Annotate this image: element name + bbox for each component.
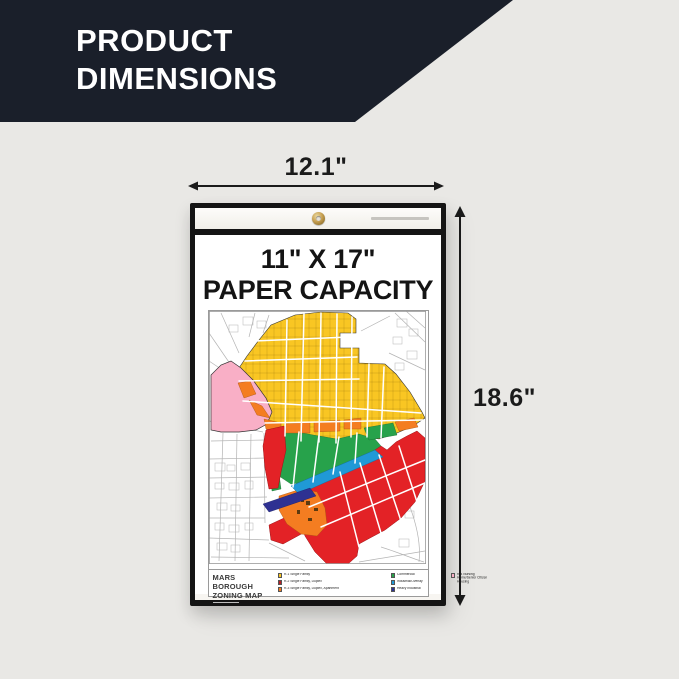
legend-label: R-2 Single Family, Duplex [284, 580, 322, 583]
width-arrow [188, 180, 444, 192]
legend-label: Industrial/Overlay [397, 580, 423, 583]
legend-item: Industrial/Overlay [391, 580, 444, 586]
paper-capacity-headline: 11" X 17" PAPER CAPACITY [195, 244, 441, 306]
banner-title-line2: DIMENSIONS [76, 60, 277, 98]
legend-item: Commercial [391, 573, 444, 579]
zoning-map: MARS BOROUGH ZONING MAP R-1 Single Famil… [208, 310, 429, 597]
legend-swatch [391, 587, 396, 592]
legend-label: Heavy Industrial [397, 587, 421, 590]
legend-column-commercial: Commercial Industrial/Overlay Heavy Indu… [391, 573, 444, 593]
zoning-map-graphic [209, 311, 426, 564]
legend-item: R-4 Nursing Home/Senior Citizen Housing [451, 573, 518, 592]
legend-column-residential: R-1 Single Family R-2 Single Family, Dup… [278, 573, 384, 593]
legend-item: R-2 Single Family, Duplex [278, 580, 384, 586]
legend-item: Heavy Industrial [391, 587, 444, 593]
legend-label: R-4 Nursing Home/Senior Citizen Housing [457, 573, 490, 583]
product-dimensions-infographic: PRODUCT DIMENSIONS 12.1" 18.6" 11" X 17"… [0, 0, 679, 679]
legend-label: Commercial [397, 573, 415, 576]
legend-swatch [278, 580, 283, 585]
legend-label: R-3 Single Family, Duplex, Apartment [284, 587, 339, 590]
legend-item: R-3 Single Family, Duplex, Apartment [278, 587, 384, 593]
map-title-line1: MARS BOROUGH [213, 573, 271, 591]
map-legend: MARS BOROUGH ZONING MAP R-1 Single Famil… [209, 569, 428, 596]
holder-hanging-strip [195, 208, 441, 229]
banner-title-line1: PRODUCT [76, 22, 277, 60]
map-title-line2: ZONING MAP [213, 591, 271, 600]
legend-item: R-1 Single Family [278, 573, 384, 579]
headline-line1: 11" X 17" [195, 244, 441, 275]
legend-swatch [278, 587, 283, 592]
banner-title: PRODUCT DIMENSIONS [76, 22, 277, 98]
legend-swatch [391, 580, 396, 585]
legend-swatch [391, 573, 396, 578]
watermark-text [371, 217, 429, 220]
grommet-eyelet-icon [312, 212, 325, 225]
width-dimension-label: 12.1" [216, 153, 416, 182]
inserted-paper: 11" X 17" PAPER CAPACITY [195, 235, 441, 594]
legend-swatch [278, 573, 283, 578]
height-arrow [453, 206, 467, 606]
legend-swatch [451, 573, 456, 578]
document-holder-product: 11" X 17" PAPER CAPACITY [190, 203, 446, 606]
height-dimension-label: 18.6" [473, 384, 536, 413]
headline-line2: PAPER CAPACITY [195, 275, 441, 306]
map-subtitle-text [213, 602, 239, 604]
map-title: MARS BOROUGH ZONING MAP [213, 573, 271, 603]
legend-label: R-1 Single Family [284, 573, 310, 576]
legend-column-r4: R-4 Nursing Home/Senior Citizen Housing [451, 573, 518, 592]
